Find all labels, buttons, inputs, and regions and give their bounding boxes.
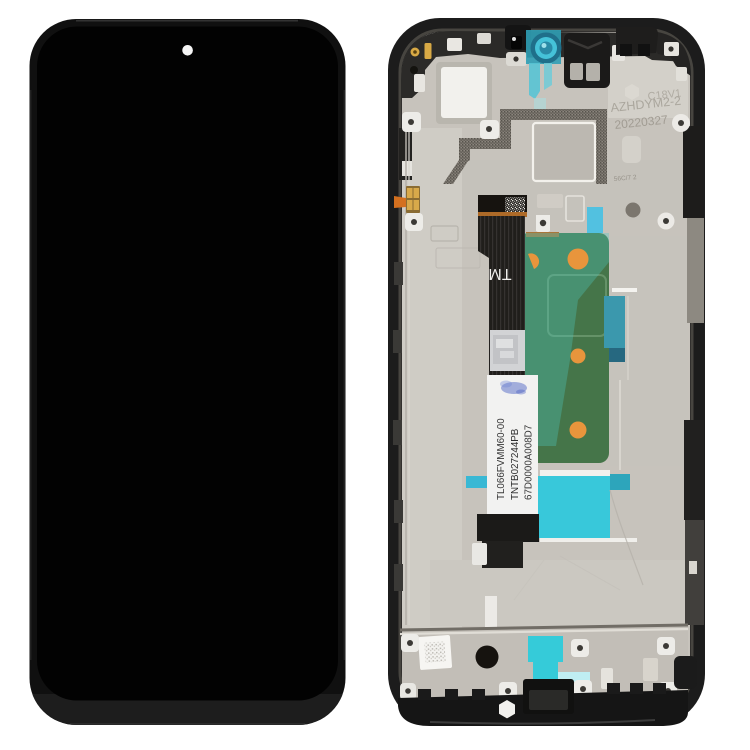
svg-text:TNTB027244PB: TNTB027244PB (510, 428, 521, 500)
svg-text:67D0000A008D7: 67D0000A008D7 (524, 425, 535, 500)
svg-text:TL066FVMM60-00: TL066FVMM60-00 (496, 418, 507, 500)
svg-text:TM: TM (488, 265, 511, 282)
